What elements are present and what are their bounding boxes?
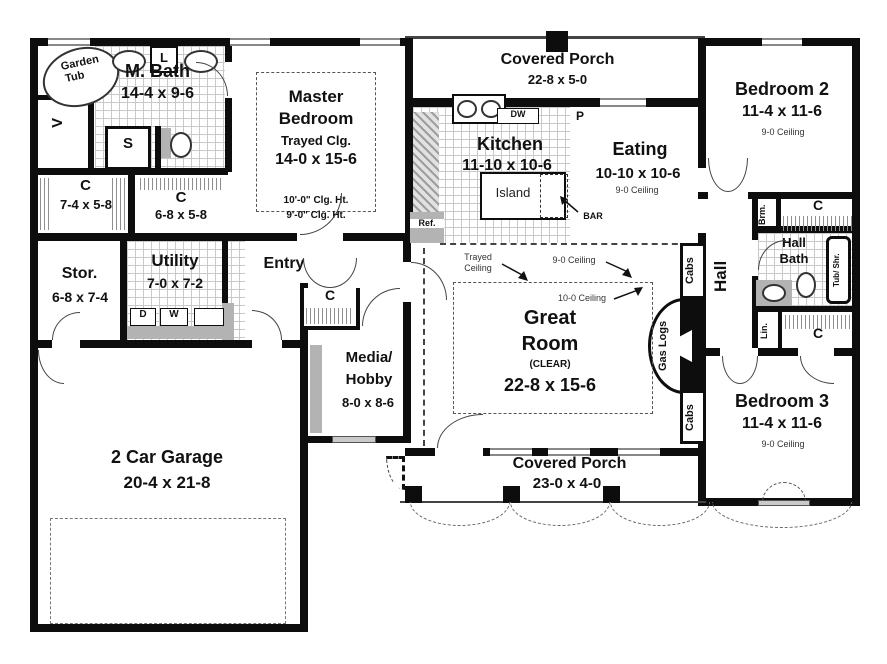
linen-hall-label: Lin. [760, 316, 769, 346]
window-top-2 [230, 38, 270, 46]
island-label: Island [482, 186, 544, 200]
ceiling-10-arrow [612, 286, 644, 302]
bedroom3-ceiling: 9-0 Ceiling [748, 440, 818, 449]
greatroom-name-2: Room [495, 334, 605, 355]
media-window-sill [332, 436, 376, 443]
entry-closet-door-arc-2 [330, 258, 357, 288]
media-dims: 8-0 x 8-6 [328, 396, 408, 410]
wall-left-exterior [30, 38, 38, 632]
porch-top-dims: 22-8 x 5-0 [515, 73, 600, 87]
fridge-label: Ref. [410, 219, 444, 228]
porch-top-name: Covered Porch [480, 52, 635, 69]
master-bedroom-name-1: Master [256, 88, 376, 106]
wall-master-suite-bottom [30, 233, 413, 241]
cabs-bottom-label: Cabs [685, 397, 696, 439]
eating-dims: 10-10 x 10-6 [582, 166, 694, 182]
window-top-3 [360, 38, 400, 46]
bedroom3-closet-door-arc [800, 356, 834, 384]
porch-scallop-2 [510, 502, 610, 526]
washer-label: W [160, 310, 188, 321]
trayed-ceiling-note-1: Trayed [452, 253, 504, 262]
chimney-block [546, 31, 568, 52]
dryer-label: D [130, 310, 156, 321]
gas-logs-label: Gas Logs [658, 310, 669, 382]
ceiling-10-note: 10-0 Ceiling [550, 294, 614, 303]
pantry-label: P [565, 110, 595, 123]
closet-master1-dims: 7-4 x 5-8 [42, 198, 130, 212]
master-bedroom-door-arc [300, 193, 342, 235]
bedroom2-door-opening [708, 192, 748, 199]
porch-scallop-3 [610, 502, 710, 526]
wall-utility-entry [222, 241, 228, 303]
entry-greatroom-door-arc [411, 262, 447, 300]
storage-dims: 6-8 x 7-4 [38, 290, 122, 305]
entry-closet-label: C [302, 288, 358, 303]
master-bedroom-dims: 14-0 x 15-6 [252, 152, 380, 169]
entry-closet-hatch [306, 308, 354, 324]
trayed-ceiling-note-2: Ceiling [452, 264, 504, 273]
greatroom-name-1: Great [495, 308, 605, 329]
bedroom3-door-opening [720, 348, 758, 356]
media-builtin [310, 345, 322, 433]
bedroom2-dims: 11-4 x 11-6 [728, 104, 836, 121]
dishwasher-label: DW [497, 110, 539, 119]
bedroom2-ceiling: 9-0 Ceiling [748, 128, 818, 137]
bedroom2-name: Bedroom 2 [718, 80, 846, 99]
storage-name: Stor. [42, 266, 117, 283]
storage-door-opening [52, 340, 80, 348]
wall-right-exterior [852, 38, 860, 506]
utility-name: Utility [130, 252, 220, 270]
greatroom-note: (CLEAR) [500, 360, 600, 371]
porch-bottom-name: Covered Porch [492, 456, 647, 473]
wall-hallbath-bottom [752, 306, 860, 312]
floor-plan: Garden Tub L M. Bath 14-4 x 9-6 S V C 7-… [0, 0, 887, 664]
garage-entry-door-arc [252, 310, 282, 340]
porch-door-opening [435, 448, 483, 456]
utility-counter [127, 326, 229, 339]
bedroom3-door-arc-1 [722, 356, 740, 384]
closet-master1-name: C [48, 178, 123, 194]
media-name-1: Media/ [330, 350, 408, 366]
ceiling-9-note: 9-0 Ceiling [544, 256, 604, 265]
kitchen-sink-1 [457, 100, 477, 118]
media-door-arc [362, 288, 400, 326]
wall-bedroom2-left [698, 46, 706, 168]
ceiling-break-line [440, 243, 698, 245]
trayed-arrow [500, 258, 530, 282]
eating-name: Eating [595, 140, 685, 159]
master-bedroom-note: Trayed Clg. [256, 134, 376, 148]
bedroom3-door-arc-2 [740, 356, 758, 384]
shower-label: S [105, 136, 151, 152]
greatroom-porch-door-arc [437, 414, 483, 448]
porch-post-2 [503, 486, 520, 503]
bedroom3-closet-opening [798, 348, 834, 356]
entry-greatroom-opening [403, 262, 411, 302]
bedroom3-dims: 11-4 x 11-6 [728, 416, 836, 433]
tub-shower-label: Tub/ Shr. [833, 242, 841, 298]
hall-bath-toilet [796, 272, 816, 298]
storage-door-arc [52, 312, 80, 340]
master-bedroom-name-2: Bedroom [256, 110, 376, 128]
wall-garage-bottom [30, 624, 308, 632]
porch-scallop-4 [712, 502, 852, 528]
bedroom3-name: Bedroom 3 [718, 392, 846, 411]
garage-door-outline [50, 518, 286, 624]
greatroom-dims: 22-8 x 15-6 [490, 376, 610, 395]
bar-label: BAR [575, 212, 611, 221]
porch-scallop-1 [410, 502, 510, 526]
wall-lin-closet-divider [778, 312, 782, 350]
media-name-2: Hobby [330, 372, 408, 388]
hallbath-door-opening [752, 240, 758, 276]
bar-arrow [558, 196, 580, 214]
garage-name: 2 Car Garage [92, 448, 242, 467]
porch-post-1 [405, 486, 422, 503]
garage-entry-door-opening [252, 340, 282, 348]
kitchen-name: Kitchen [445, 135, 575, 154]
cabs-top-label: Cabs [685, 250, 696, 292]
wall-brm-closet-divider [776, 192, 781, 233]
window-eating-top [600, 98, 646, 107]
garage-side-door-arc [38, 350, 64, 384]
window-bedroom2-top [762, 38, 802, 46]
vanity-v-label: V [50, 113, 66, 133]
closet-master2-dims: 6-8 x 5-8 [136, 208, 226, 222]
mbath-toilet [170, 132, 192, 158]
ceiling-9-arrow [604, 258, 634, 280]
eating-ceiling: 9-0 Ceiling [602, 186, 672, 195]
closet-hall-upper-hatch [783, 216, 853, 231]
porch-post-3 [603, 486, 620, 503]
closet-hall-lower-name: C [800, 326, 836, 341]
window-top-1 [48, 38, 90, 46]
wall-v-nook-right [88, 95, 94, 168]
utility-dims: 7-0 x 7-2 [134, 276, 216, 291]
wall-master-kitchen-divider [405, 38, 413, 241]
broom-closet-label: Brm. [758, 200, 767, 230]
hall-bath-sink [762, 284, 786, 302]
utility-sink-box [194, 308, 224, 326]
hall-name: Hall [712, 248, 729, 304]
bedroom2-door-arc-2 [728, 158, 748, 192]
bedroom3-bay-window [762, 482, 806, 502]
garage-dims: 20-4 x 21-8 [98, 474, 236, 492]
bedroom2-door-arc-1 [708, 158, 728, 192]
porch-left-arc [386, 456, 405, 490]
closet-hall-upper-name: C [800, 198, 836, 213]
wall-garage-right [300, 283, 308, 632]
wall-kitchen-porch [405, 98, 702, 107]
closet-master2-name: C [142, 190, 220, 206]
